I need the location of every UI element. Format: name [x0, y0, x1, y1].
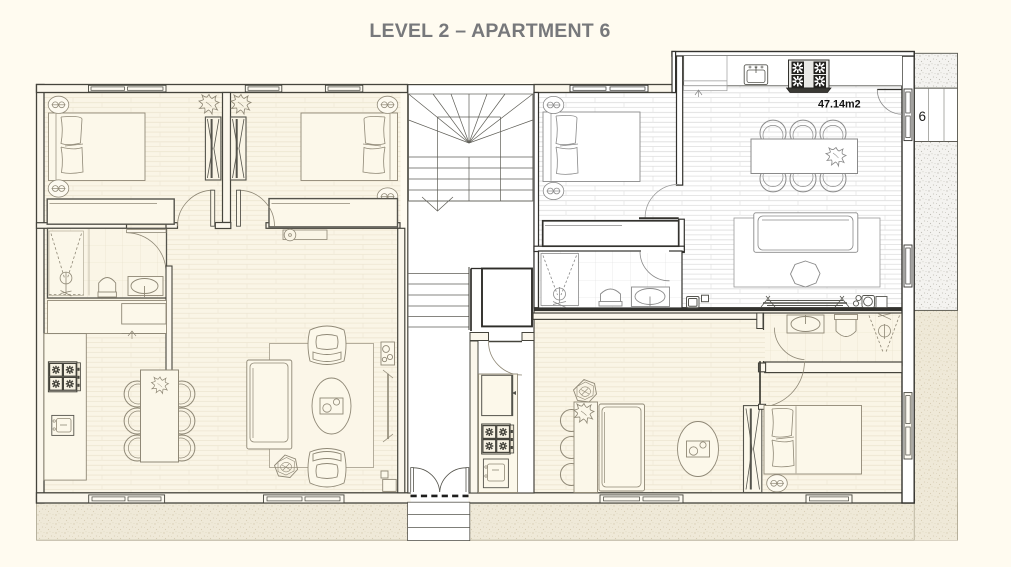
svg-text:6: 6	[919, 109, 927, 124]
svg-text:47.14m2: 47.14m2	[818, 99, 861, 111]
svg-text:LEVEL 2 – APARTMENT 6: LEVEL 2 – APARTMENT 6	[369, 20, 610, 42]
